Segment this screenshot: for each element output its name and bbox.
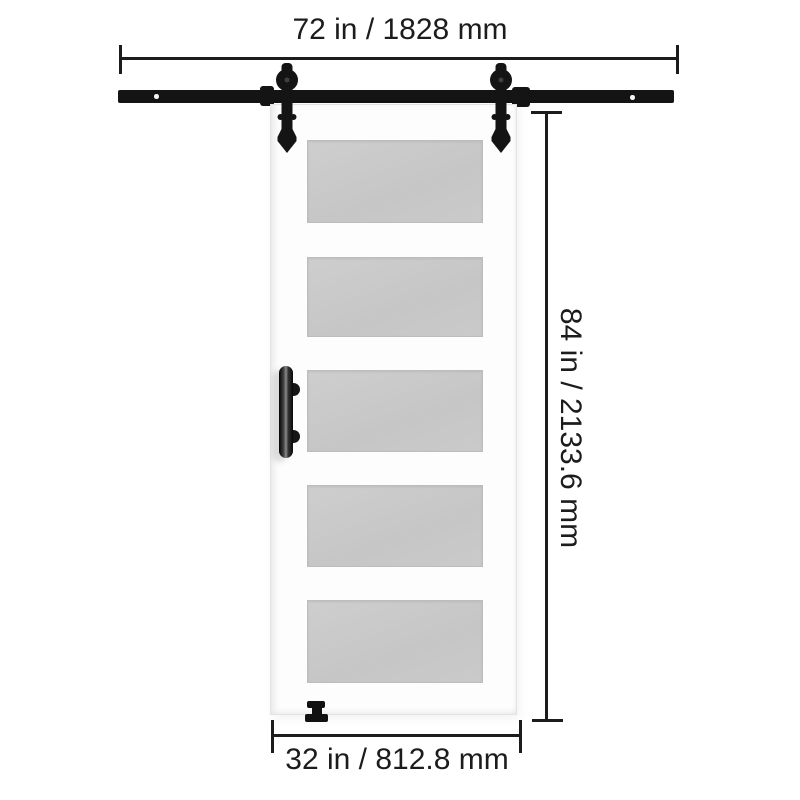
right-dimension-tick-top [531,111,562,114]
wheel-axle [285,78,290,83]
door-handle [279,366,293,458]
rail-screw-right [630,95,635,100]
top-dimension-line [121,57,678,60]
right-dimension-tick-bottom [532,719,563,722]
glass-panel-4 [307,485,483,567]
glass-panel-2 [307,257,483,337]
strap-arrow-tip [278,129,297,153]
strap-arrow-tip [492,129,511,153]
rail-screw-left [154,94,159,99]
strap-bolt [278,114,284,120]
strap-bolt [505,114,511,120]
right-roller-hanger [481,55,521,155]
glass-panel-5 [307,600,483,683]
top-dimension-tick-right [676,45,679,74]
floor-guide-base [305,714,328,722]
left-roller-hanger [267,55,307,155]
glass-panel-1 [307,140,483,223]
bottom-dimension-line [272,734,521,737]
door-height-label: 84 in / 2133.6 mm [554,308,586,548]
wheel-axle [499,78,504,83]
strap-bolt [492,114,498,120]
strap-bolt [291,114,297,120]
door-width-label: 32 in / 812.8 mm [97,744,697,776]
glass-panel-3 [307,370,483,452]
right-dimension-line [545,113,548,721]
rail-width-label: 72 in / 1828 mm [0,14,800,46]
hanger-strap [496,63,507,135]
top-dimension-tick-left [119,45,122,74]
floor-guide [303,698,331,728]
barn-door-dimension-diagram: 72 in / 1828 mm [0,0,800,800]
sliding-rail [118,90,674,103]
hanger-strap [282,63,293,135]
